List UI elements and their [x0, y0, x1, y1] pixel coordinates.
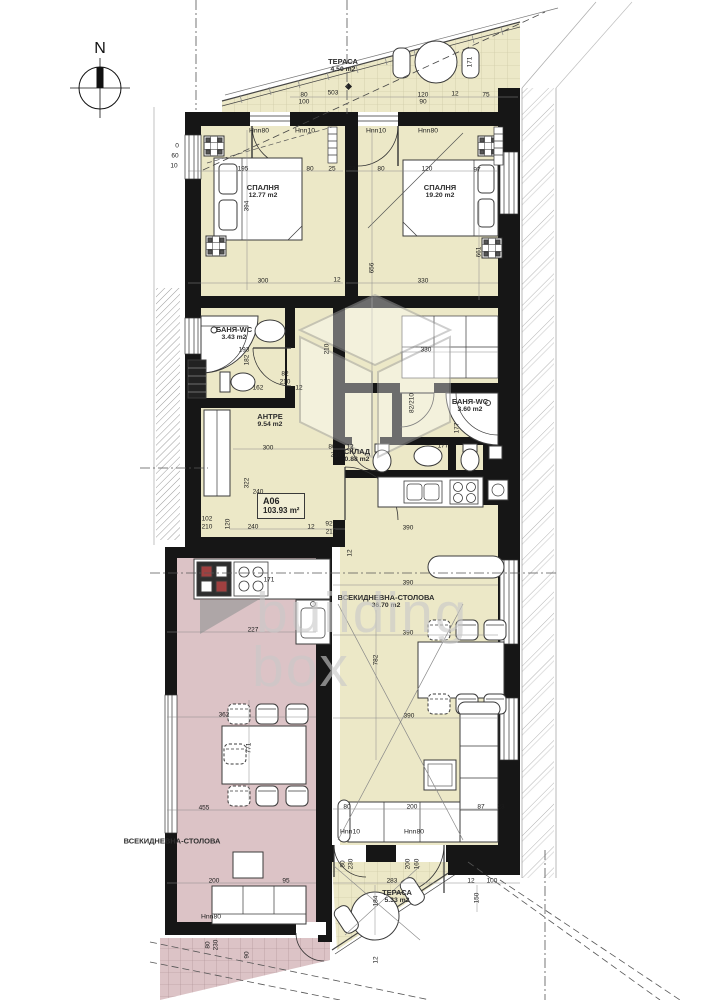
floorplan-canvas: ТЕРАСА4.50 m2СПАЛНЯ12.77 m2СПАЛНЯ19.20 m…	[0, 0, 714, 1000]
toilet-icon	[461, 444, 479, 471]
neighbor-dining-table	[222, 704, 308, 806]
plan-drawing	[0, 0, 714, 1000]
dining-table	[418, 620, 506, 714]
compass-icon	[70, 58, 130, 118]
sink-icon	[414, 446, 442, 466]
apartment-area-badge: A06 103.93 m²	[257, 493, 305, 519]
bar-counter	[428, 556, 504, 578]
wardrobe-icon	[204, 410, 230, 496]
apartment-total-area: 103.93 m²	[263, 506, 299, 515]
sink-icon	[255, 320, 285, 342]
compass-north-label: N	[94, 40, 106, 58]
stove-icon	[450, 480, 478, 504]
bed-2	[403, 160, 498, 236]
kitchen-counter	[378, 477, 483, 507]
toilet-icon	[220, 372, 255, 392]
shaft-hatch	[188, 360, 206, 398]
apartment-id: A06	[263, 496, 299, 506]
stove-icon-dark	[197, 562, 231, 596]
stove-icon	[234, 562, 268, 596]
bed-1	[214, 158, 302, 240]
